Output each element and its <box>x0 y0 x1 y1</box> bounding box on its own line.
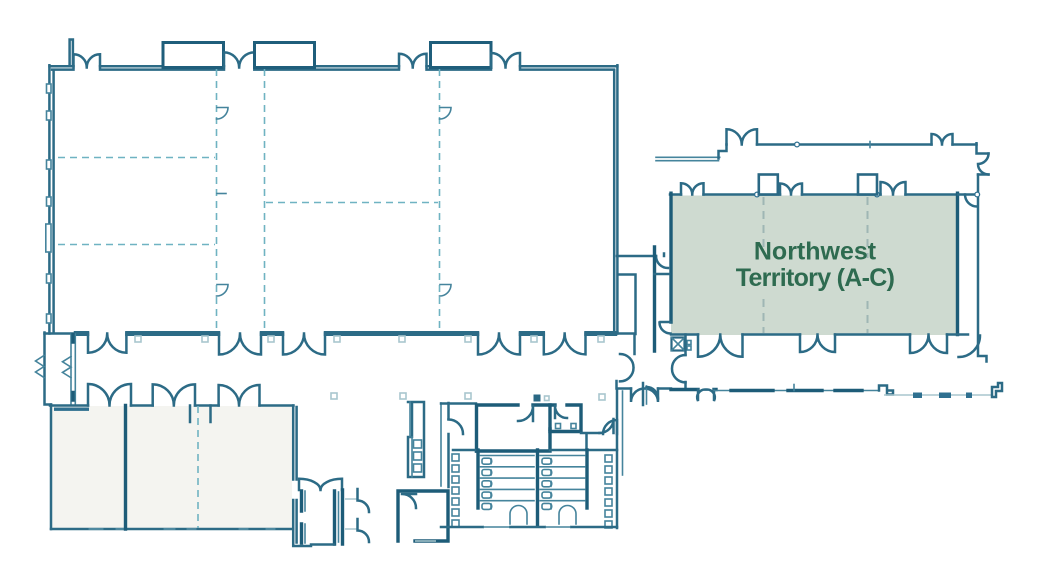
svg-text:Northwest: Northwest <box>754 238 877 266</box>
svg-text:Territory (A-C): Territory (A-C) <box>736 264 895 292</box>
